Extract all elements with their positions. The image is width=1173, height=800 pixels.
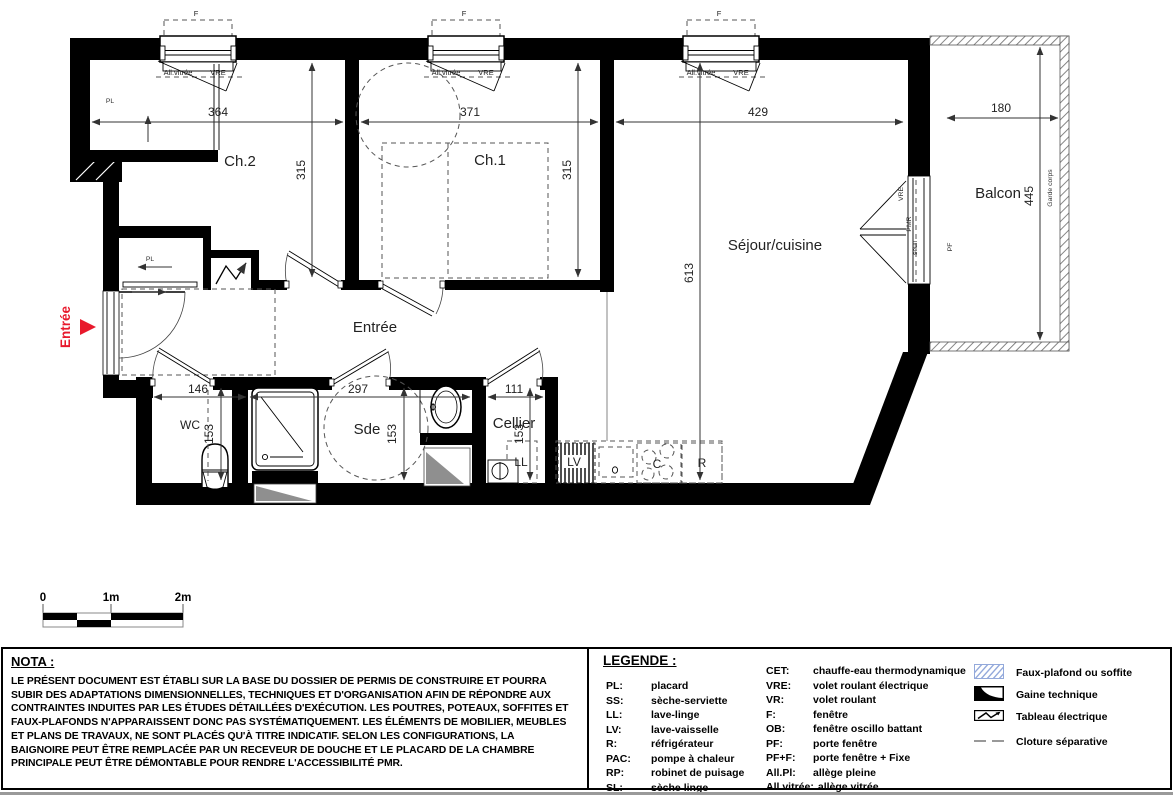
floorplan-page: F F F All.vitrée VRE All.vitrée VRE All.… — [0, 0, 1173, 800]
legend-item: F:fenêtre — [766, 708, 966, 723]
dim-ch1-width: 371 — [460, 105, 480, 119]
kitchen-c-label: C — [653, 457, 662, 471]
window-sejour — [679, 20, 765, 91]
nota-body: LE PRÉSENT DOCUMENT EST ÉTABLI SUR LA BA… — [11, 675, 573, 771]
pmr-circle-ch1 — [356, 63, 460, 167]
dim-ch1-height: 315 — [560, 160, 574, 180]
legend-symbol-cloture: Cloture séparative — [974, 736, 1108, 748]
washbasin-sde — [420, 383, 461, 433]
tableau-electrique-icon — [974, 708, 1008, 726]
nota-section: NOTA : LE PRÉSENT DOCUMENT EST ÉTABLI SU… — [3, 649, 589, 788]
gaine-below-shower — [254, 484, 316, 503]
room-label-balcon: Balcon — [975, 185, 1021, 202]
legend-symbol-tableau: Tableau électrique — [974, 708, 1107, 726]
notes-legend-panel: NOTA : LE PRÉSENT DOCUMENT EST ÉTABLI SU… — [1, 647, 1172, 790]
legend-item: CET:chauffe-eau thermodynamique — [766, 664, 966, 679]
allvitree-label-1: All.vitrée — [164, 68, 193, 77]
dim-sde-height: 153 — [385, 424, 399, 444]
legend-item: VRE:volet roulant électrique — [766, 679, 966, 694]
dim-sejour-height: 613 — [682, 263, 696, 283]
legend-section: LEGENDE : PL:placard SS:sèche-serviette … — [593, 649, 1170, 788]
allvitree-label-2: All.vitrée — [432, 68, 461, 77]
window-label-f-3: F — [717, 9, 722, 18]
dim-wc-width: 146 — [188, 382, 208, 396]
room-label-sde: Sde — [354, 421, 381, 438]
tableau-electrique-box — [216, 263, 246, 284]
gaine-technique-icon — [974, 686, 1008, 704]
walls — [70, 38, 930, 505]
window-ch1 — [424, 20, 510, 91]
legend-title: LEGENDE : — [603, 653, 677, 668]
dim-ch2-width: 364 — [208, 105, 228, 119]
cellier-ll-label: LL — [514, 455, 528, 469]
room-label-entree: Entrée — [353, 319, 397, 336]
dim-ch2-height: 315 — [294, 160, 308, 180]
pf-seuil-label: seuil — [912, 241, 919, 255]
scale-2m-label: 2m — [175, 592, 192, 604]
legend-item: VR:volet roulant — [766, 693, 966, 708]
legend-item: R:réfrigérateur — [606, 737, 744, 752]
gaine-basin-niche — [424, 448, 470, 486]
faux-plafond-hatch-icon — [974, 664, 1008, 682]
toilet-wc — [202, 444, 228, 489]
legend-item: PF:porte fenêtre — [766, 737, 966, 752]
door-wc — [150, 348, 215, 386]
door-ch2 — [284, 251, 343, 288]
scale-1m-label: 1m — [103, 592, 120, 604]
shower-sde — [252, 388, 318, 470]
pf-label: PF — [947, 243, 954, 252]
closet-entree-pl-label: PL — [146, 256, 155, 263]
scale-0-label: 0 — [40, 592, 46, 604]
dim-wc-height: 153 — [202, 424, 216, 444]
legend-item: PL:placard — [606, 679, 744, 694]
room-label-ch2: Ch.2 — [224, 153, 256, 170]
entrance-clearance-zone — [122, 289, 275, 375]
window-label-f-2: F — [462, 9, 467, 18]
closet-top-left-pl-label: PL — [106, 98, 115, 105]
allvitree-label-3: All.vitrée — [687, 68, 716, 77]
bottom-rule — [0, 792, 1173, 795]
legend-item: RP:robinet de puisage — [606, 766, 744, 781]
vre-label-2: VRE — [478, 68, 493, 77]
pf-pmr-label: PMR — [906, 216, 913, 231]
floor-plan-svg: F F F All.vitrée VRE All.vitrée VRE All.… — [0, 0, 1173, 640]
door-sde — [329, 349, 391, 386]
entrance-arrow-icon — [80, 319, 96, 335]
dim-cellier-height: 153 — [512, 424, 526, 444]
dim-cellier-width: 111 — [505, 382, 524, 396]
scale-bar — [43, 604, 183, 627]
balcony-door-pf — [860, 176, 930, 284]
room-label-ch1: Ch.1 — [474, 152, 506, 169]
dim-balcon-width: 180 — [991, 101, 1011, 115]
entrance-label: Entrée — [58, 306, 73, 349]
legend-item: SS:sèche-serviette — [606, 694, 744, 709]
kitchen-r-label: R — [698, 456, 707, 470]
closet-top-left — [90, 64, 219, 162]
bed-ch1 — [382, 143, 548, 278]
room-label-wc: WC — [180, 418, 200, 432]
legend-item: PF+F:porte fenêtre + Fixe — [766, 751, 966, 766]
door-cellier — [483, 348, 543, 386]
legend-item: LL:lave-linge — [606, 708, 744, 723]
legend-item: OB:fenêtre oscillo battant — [766, 722, 966, 737]
closet-entree — [123, 267, 197, 287]
legend-item: All.Pl:allège pleine — [766, 766, 966, 781]
window-ch2 — [156, 20, 242, 91]
door-ch1 — [378, 281, 445, 316]
vre-label-3: VRE — [733, 68, 748, 77]
room-label-sejour: Séjour/cuisine — [728, 237, 822, 254]
legend-column-2: CET:chauffe-eau thermodynamique VRE:vole… — [766, 664, 966, 795]
legend-column-1: PL:placard SS:sèche-serviette LL:lave-li… — [606, 679, 744, 795]
vre-label-1: VRE — [210, 68, 225, 77]
kitchen-lv-label: LV — [567, 455, 581, 469]
legend-item: LV:lave-vaisselle — [606, 723, 744, 738]
window-label-f-1: F — [194, 9, 199, 18]
dim-sde-width: 297 — [348, 382, 368, 396]
dim-sejour-width: 429 — [748, 105, 768, 119]
entrance-door — [103, 291, 185, 375]
legend-symbol-faux-plafond: Faux-plafond ou soffite — [974, 664, 1132, 682]
dim-balcon-height: 445 — [1022, 186, 1036, 206]
legend-item: PAC:pompe à chaleur — [606, 752, 744, 767]
cloture-separative-icon — [974, 736, 1008, 748]
legend-symbol-gaine: Gaine technique — [974, 686, 1098, 704]
pf-vre-label: VRE — [898, 187, 905, 201]
garde-corps-label: Garde corps — [1047, 169, 1054, 207]
nota-title: NOTA : — [11, 654, 54, 669]
